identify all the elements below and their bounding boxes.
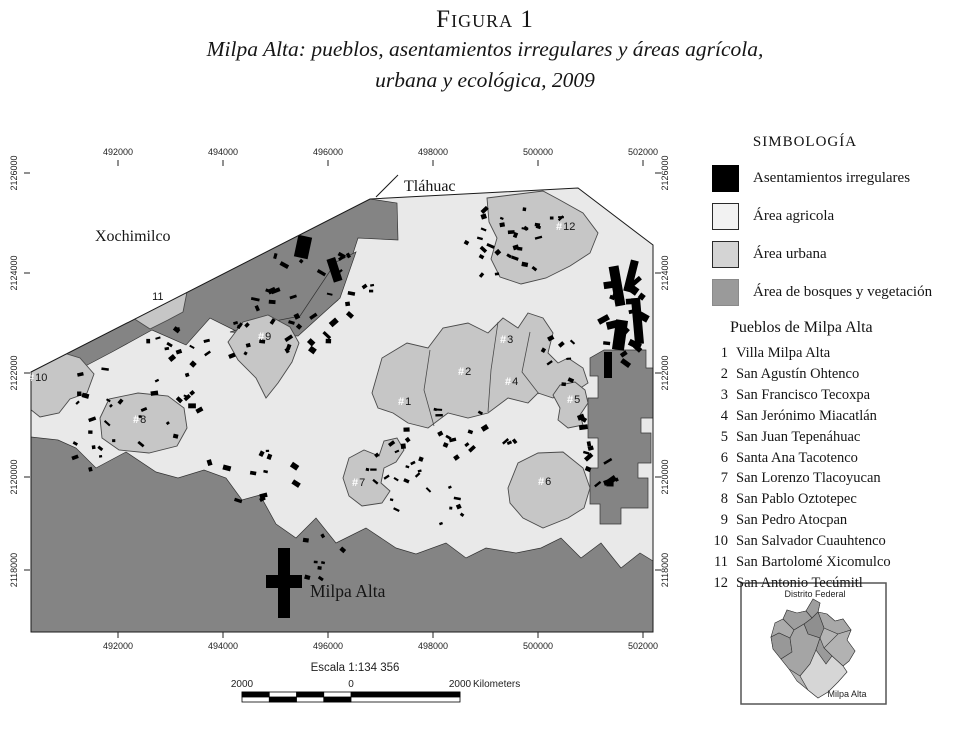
pueblo-number: 11 bbox=[700, 552, 728, 573]
pueblo-list-item: 11San Bartolomé Xicomulco bbox=[700, 552, 968, 573]
pueblo-name: San Francisco Tecoxpa bbox=[736, 385, 870, 406]
map-region-label: Tláhuac bbox=[404, 178, 456, 195]
pueblos-list-title: Pueblos de Milpa Alta bbox=[730, 319, 968, 337]
settlement-patch bbox=[88, 430, 92, 433]
scale-title: Escala 1:134 356 bbox=[311, 662, 400, 674]
pueblo-name: Santa Ana Tacotenco bbox=[736, 448, 858, 469]
pueblo-list-item: 12San Antonio Tecúmitl bbox=[700, 573, 968, 594]
scale-zero-label: 0 bbox=[348, 679, 354, 690]
axis-tick-label: 494000 bbox=[208, 641, 238, 651]
axis-tick-label: 2126000 bbox=[660, 155, 670, 190]
pueblo-marker: #9 bbox=[258, 331, 271, 343]
axis-tick-label: 498000 bbox=[418, 641, 448, 651]
axis-tick-label: 2126000 bbox=[9, 155, 19, 190]
axis-tick-label: 492000 bbox=[103, 147, 133, 157]
pueblo-number: 10 bbox=[700, 531, 728, 552]
pueblo-number: 6 bbox=[700, 448, 728, 469]
settlement-patch bbox=[435, 414, 442, 416]
scalebar: Escala 1:134 356 2000 0 2000 Kilometers bbox=[231, 662, 520, 702]
pueblo-list-item: 3San Francisco Tecoxpa bbox=[700, 385, 968, 406]
pueblo-number: 8 bbox=[700, 489, 728, 510]
pueblo-list-item: 8San Pablo Oztotepec bbox=[700, 489, 968, 510]
axis-tick-label: 502000 bbox=[628, 641, 658, 651]
pueblo-name: San Jerónimo Miacatlán bbox=[736, 406, 877, 427]
pueblo-marker: #8 bbox=[133, 414, 146, 426]
settlement-patch bbox=[112, 439, 115, 442]
pueblo-name: San Juan Tepenáhuac bbox=[736, 427, 860, 448]
legend-item-label: Área urbana bbox=[753, 246, 827, 263]
scale-left-label: 2000 bbox=[231, 679, 254, 690]
settlement-patch bbox=[370, 469, 376, 471]
settlement-patch bbox=[317, 566, 321, 570]
settlement-patch bbox=[550, 217, 554, 220]
pueblo-list-item: 9San Pedro Atocpan bbox=[700, 510, 968, 531]
bosques-east-strip bbox=[588, 350, 653, 524]
pueblo-marker: #11 bbox=[145, 291, 164, 303]
settlement-patch bbox=[561, 382, 566, 386]
map-region-label: Xochimilco bbox=[95, 228, 171, 245]
axis-tick-label: 2120000 bbox=[660, 459, 670, 494]
pueblo-number: 3 bbox=[700, 385, 728, 406]
settlement-patch bbox=[314, 561, 318, 564]
axis-tick-label: 2120000 bbox=[9, 459, 19, 494]
legend-swatch bbox=[712, 279, 739, 306]
pueblo-number: 9 bbox=[700, 510, 728, 531]
pueblo-number: 4 bbox=[700, 406, 728, 427]
legend-title: SIMBOLOGÍA bbox=[700, 134, 910, 151]
inset-milpa-alta-label: Milpa Alta bbox=[827, 689, 866, 699]
settlement-patch bbox=[266, 450, 269, 452]
pueblo-marker: #3 bbox=[500, 334, 513, 346]
axis-tick-label: 502000 bbox=[628, 147, 658, 157]
scalebar-graphic bbox=[242, 692, 460, 702]
legend-items: Asentamientos irregularesÁrea agricolaÁr… bbox=[700, 159, 968, 311]
legend-item: Área de bosques y vegetación bbox=[700, 273, 968, 311]
settlement-patch bbox=[146, 339, 150, 344]
pueblo-name: Villa Milpa Alta bbox=[736, 343, 830, 364]
pueblo-name: San Agustín Ohtenco bbox=[736, 364, 859, 385]
pueblo-number: 12 bbox=[700, 573, 728, 594]
scale-right-label: 2000 bbox=[449, 679, 472, 690]
legend-item: Área agricola bbox=[700, 197, 968, 235]
pueblo-list-item: 10San Salvador Cuauhtenco bbox=[700, 531, 968, 552]
pueblo-marker: #5 bbox=[567, 394, 580, 406]
settlement-patch bbox=[603, 341, 610, 345]
pueblo-list-item: 2San Agustín Ohtenco bbox=[700, 364, 968, 385]
axis-tick-label: 2118000 bbox=[660, 553, 670, 587]
axis-top: 492000494000496000498000500000502000 bbox=[103, 147, 658, 166]
axis-left: 21260002124000212200021200002118000 bbox=[9, 155, 30, 587]
scale-unit-label: Kilometers bbox=[473, 679, 520, 690]
legend-item: Asentamientos irregulares bbox=[700, 159, 968, 197]
pueblo-marker: #2 bbox=[458, 366, 471, 378]
axis-tick-label: 496000 bbox=[313, 641, 343, 651]
settlement-patch bbox=[99, 455, 102, 458]
axis-right: 21260002124000212200021200002118000 bbox=[655, 155, 670, 587]
pueblo-marker: #1 bbox=[398, 396, 411, 408]
pueblos-list: 1Villa Milpa Alta2San Agustín Ohtenco3Sa… bbox=[700, 343, 968, 594]
settlement-patch bbox=[369, 290, 373, 293]
axis-tick-label: 496000 bbox=[313, 147, 343, 157]
pueblo-name: San Antonio Tecúmitl bbox=[736, 573, 863, 594]
legend-swatch bbox=[712, 165, 739, 192]
axis-tick-label: 492000 bbox=[103, 641, 133, 651]
settlement-patch bbox=[77, 391, 81, 396]
settlement-patch bbox=[326, 339, 332, 344]
settlement-patch bbox=[449, 507, 452, 510]
pueblo-marker: #10 bbox=[28, 372, 47, 384]
settlement-patch bbox=[401, 443, 406, 449]
pueblo-list-item: 1Villa Milpa Alta bbox=[700, 343, 968, 364]
settlement-patch bbox=[626, 299, 632, 305]
legend-item: Área urbana bbox=[700, 235, 968, 273]
axis-tick-label: 2124000 bbox=[660, 255, 670, 290]
legend-item-label: Área agricola bbox=[753, 208, 834, 225]
pueblo-list-item: 4San Jerónimo Miacatlán bbox=[700, 406, 968, 427]
settlement-patch bbox=[522, 207, 526, 211]
axis-tick-label: 500000 bbox=[523, 641, 553, 651]
settlement-patch bbox=[188, 403, 196, 408]
figure-page: Figura 1 Milpa Alta: pueblos, asentamien… bbox=[0, 0, 970, 730]
pueblo-number: 7 bbox=[700, 468, 728, 489]
settlement-patch bbox=[303, 538, 309, 543]
settlement-patch bbox=[495, 272, 499, 275]
settlement-patch bbox=[403, 427, 409, 431]
settlement-patch bbox=[535, 223, 541, 227]
axis-tick-label: 2122000 bbox=[660, 355, 670, 390]
pueblo-list-item: 6Santa Ana Tacotenco bbox=[700, 448, 968, 469]
settlement-patch bbox=[269, 300, 276, 304]
axis-tick-label: 498000 bbox=[418, 147, 448, 157]
legend-panel: SIMBOLOGÍA Asentamientos irregularesÁrea… bbox=[700, 134, 968, 594]
pueblo-number: 2 bbox=[700, 364, 728, 385]
axis-tick-label: 494000 bbox=[208, 147, 238, 157]
legend-item-label: Asentamientos irregulares bbox=[753, 170, 910, 187]
axis-tick-label: 2118000 bbox=[9, 553, 19, 587]
legend-swatch bbox=[712, 241, 739, 268]
settlement-patch bbox=[92, 445, 96, 449]
pueblo-name: San Lorenzo Tlacoyucan bbox=[736, 468, 881, 489]
pueblo-name: San Bartolomé Xicomulco bbox=[736, 552, 891, 573]
pueblo-name: San Salvador Cuauhtenco bbox=[736, 531, 886, 552]
legend-swatch bbox=[712, 203, 739, 230]
pueblo-number: 1 bbox=[700, 343, 728, 364]
pueblo-marker: #4 bbox=[505, 376, 518, 388]
legend-item-label: Área de bosques y vegetación bbox=[753, 284, 932, 301]
inset-map: Distrito Federal Milpa Alta bbox=[741, 583, 886, 704]
axis-bottom: 492000494000496000498000500000502000 bbox=[103, 632, 658, 651]
pueblo-name: San Pedro Atocpan bbox=[736, 510, 847, 531]
settlement-patch bbox=[499, 222, 505, 227]
pueblo-list-item: 7San Lorenzo Tlacoyucan bbox=[700, 468, 968, 489]
pueblo-marker: #6 bbox=[538, 476, 551, 488]
axis-tick-label: 500000 bbox=[523, 147, 553, 157]
axis-tick-label: 2124000 bbox=[9, 255, 19, 290]
settlement-patch bbox=[508, 230, 515, 234]
pueblo-name: San Pablo Oztotepec bbox=[736, 489, 857, 510]
pueblo-marker: #7 bbox=[352, 477, 365, 489]
pueblo-number: 5 bbox=[700, 427, 728, 448]
axis-tick-label: 2122000 bbox=[9, 355, 19, 390]
pueblo-list-item: 5San Juan Tepenáhuac bbox=[700, 427, 968, 448]
settlement-patch bbox=[345, 302, 350, 307]
pueblo-marker: #12 bbox=[556, 221, 575, 233]
map-region-label: Milpa Alta bbox=[310, 581, 386, 601]
tlahuac-leader-line bbox=[376, 175, 398, 197]
